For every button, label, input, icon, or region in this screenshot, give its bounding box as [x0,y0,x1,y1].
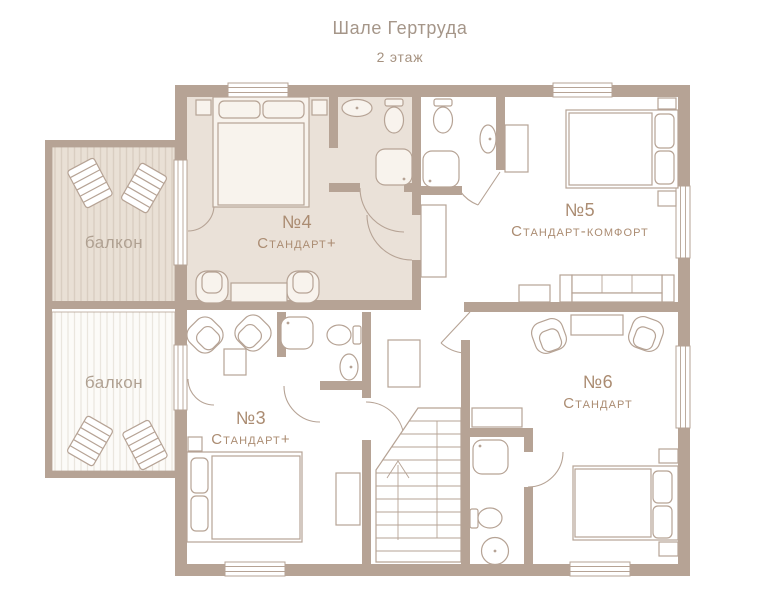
shower-icon [376,149,412,185]
shower-icon [423,151,459,187]
sofa-icon [560,275,674,302]
sink-icon [480,125,496,153]
table-icon [224,349,246,375]
nightstand-icon [659,449,678,463]
shower-icon [281,317,313,349]
window-icon [228,83,288,97]
toilet-icon [327,325,361,345]
bed-icon [566,110,678,188]
bed-icon [213,97,309,207]
table-icon [519,285,550,302]
toilet-icon [434,99,453,133]
window-icon [570,562,630,576]
nightstand-icon [658,191,676,206]
room-3-label: №3 Стандарт+ [181,408,321,448]
room-3-type: Стандарт+ [181,431,321,448]
table-icon [231,283,287,302]
room-5-type: Стандарт-комфорт [502,223,658,240]
room-5-number: №5 [502,200,658,221]
toilet-icon [470,508,502,528]
table-icon [571,315,623,335]
bed-icon [573,466,678,540]
nightstand-icon [312,100,327,115]
room-6-number: №6 [528,372,668,393]
nightstand-icon [659,542,678,556]
wardrobe-icon [421,205,446,277]
room-3-number: №3 [181,408,321,429]
shower-icon [473,440,508,474]
room-6-type: Стандарт [528,395,668,412]
balcony-upper [52,147,175,305]
room-5-label: №5 Стандарт-комфорт [502,200,658,240]
sink-icon [340,354,358,380]
floor-plan-page: Шале Гертруда 2 этаж балкон балкон №4 Ст… [0,0,771,602]
room-4-number: №4 [227,212,367,233]
floor-subtitle: 2 этаж [300,49,500,65]
window-icon [676,346,690,428]
floor-plan-svg [0,0,771,602]
page-title: Шале Гертруда [300,18,500,39]
balcony-upper-label: балкон [64,233,164,253]
bed-icon [187,452,302,542]
balcony-lower-label: балкон [64,373,164,393]
room-6-label: №6 Стандарт [528,372,668,412]
sink-icon [482,538,509,565]
window-icon [676,186,690,258]
window-icon [553,83,612,97]
wardrobe-icon [388,340,420,387]
room-4-type: Стандарт+ [227,235,367,252]
armchair-icon [287,271,319,303]
nightstand-icon [658,98,676,109]
window-icon [225,562,285,576]
wardrobe-icon [505,125,528,172]
nightstand-icon [196,100,211,115]
armchair-icon [196,271,228,303]
room-4-label: №4 Стандарт+ [227,212,367,252]
wardrobe-icon [336,473,360,525]
wardrobe-icon [472,408,522,427]
toilet-icon [385,99,404,133]
